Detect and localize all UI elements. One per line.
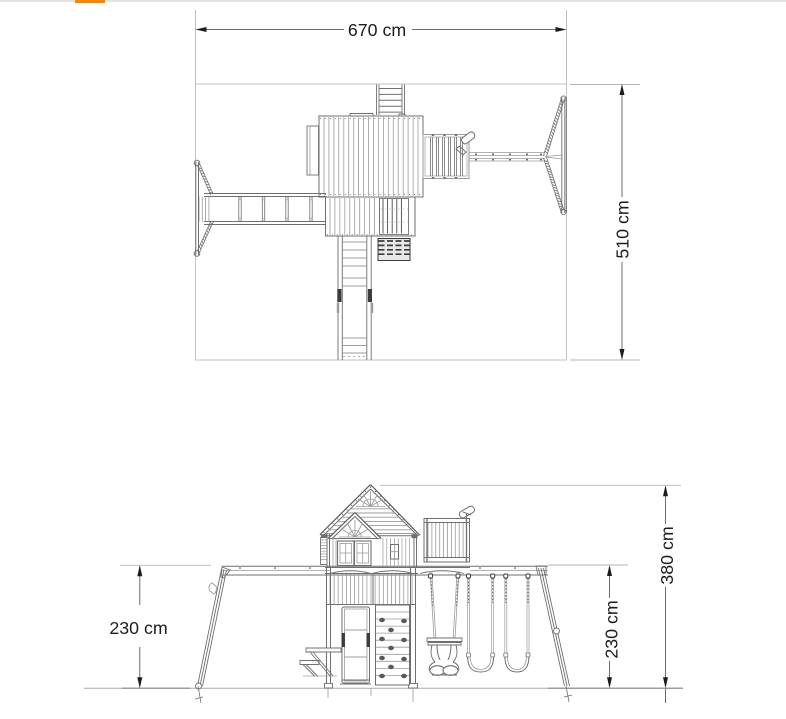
svg-text:510 cm: 510 cm	[613, 200, 633, 258]
svg-text:380 cm: 380 cm	[657, 526, 677, 584]
svg-text:230 cm: 230 cm	[109, 618, 167, 638]
svg-text:670 cm: 670 cm	[348, 20, 406, 40]
svg-text:230 cm: 230 cm	[602, 600, 622, 658]
